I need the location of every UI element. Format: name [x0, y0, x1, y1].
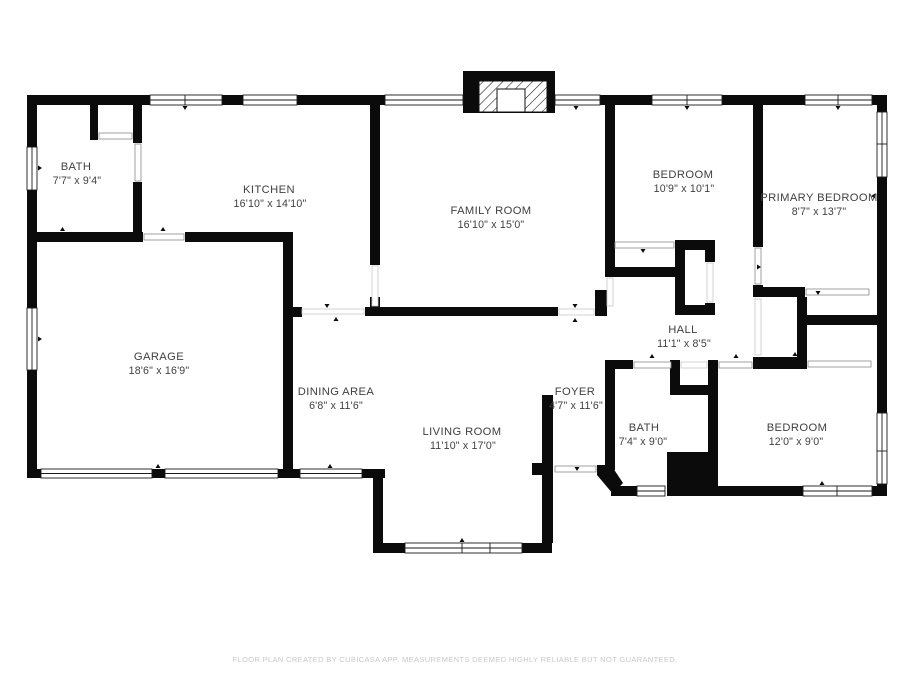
- room-label-foyer: FOYER 4'7" x 11'6": [549, 386, 603, 412]
- window: [637, 486, 665, 496]
- window: [243, 95, 297, 105]
- wall-segment: [611, 486, 637, 496]
- entry-door: [555, 466, 596, 472]
- room-name: GARAGE: [134, 351, 184, 363]
- room-name: FOYER: [555, 386, 596, 398]
- wall-segment: [718, 486, 803, 496]
- window: [27, 147, 37, 190]
- window: [405, 543, 522, 553]
- wall-segment: [807, 315, 877, 325]
- wall-segment: [753, 357, 807, 369]
- door-opening: [135, 144, 141, 181]
- room-label-garage: GARAGE 18'6" x 16'9": [129, 351, 190, 377]
- garage-door: [165, 469, 278, 478]
- wall-segment: [670, 385, 718, 395]
- room-name: KITCHEN: [243, 184, 295, 196]
- room-dimensions: 10'9" x 10'1": [654, 183, 715, 195]
- wall-segment: [532, 463, 542, 475]
- cased-opening: [607, 278, 613, 306]
- room-dimensions: 4'7" x 11'6": [549, 400, 603, 412]
- cased-opening: [372, 266, 378, 306]
- wall-segment: [133, 105, 142, 143]
- room-label-family-room: FAMILY ROOM 16'10" x 15'0": [450, 205, 531, 231]
- window: [555, 95, 600, 105]
- room-label-primary-bedroom: PRIMARY BEDROOM 8'7" x 13'7": [760, 192, 877, 218]
- wall-segment: [605, 240, 614, 250]
- room-dimensions: 8'7" x 13'7": [792, 206, 847, 218]
- room-name: FAMILY ROOM: [450, 205, 531, 217]
- wall-segment: [293, 307, 302, 317]
- room-label-kitchen: KITCHEN 16'10" x 14'10": [234, 184, 307, 210]
- room-label-bath-1: BATH 7'7" x 9'4": [53, 161, 102, 187]
- door-opening: [99, 133, 132, 139]
- room-name: LIVING ROOM: [423, 426, 502, 438]
- wall-segment: [27, 95, 37, 147]
- wall-segment: [297, 95, 385, 105]
- wall-segment: [877, 177, 887, 413]
- wall-segment: [27, 469, 41, 478]
- window: [877, 413, 887, 484]
- wall-segment: [90, 105, 98, 140]
- room-name: HALL: [668, 324, 698, 336]
- wall-segment: [283, 232, 293, 478]
- fireplace: [463, 71, 555, 113]
- floor-plan-drawing: BATH 7'7" x 9'4" KITCHEN 16'10" x 14'10"…: [0, 0, 911, 683]
- door-opening: [615, 242, 674, 248]
- wall-segment: [675, 240, 685, 315]
- wall-segment: [872, 95, 887, 105]
- wall-segment: [152, 469, 165, 478]
- closet-door: [808, 361, 871, 367]
- room-label-hall: HALL 11'1" x 8'5": [657, 324, 711, 350]
- closet-opening: [681, 362, 707, 368]
- room-name: DINING AREA: [298, 386, 375, 398]
- floor-plan-page: BATH 7'7" x 9'4" KITCHEN 16'10" x 14'10"…: [0, 0, 911, 683]
- wall-segment: [27, 232, 143, 242]
- room-label-dining-area: DINING AREA 6'8" x 11'6": [298, 386, 375, 412]
- wall-segment: [797, 297, 807, 367]
- room-dimensions: 12'0" x 9'0": [769, 436, 824, 448]
- closet-opening: [707, 263, 713, 302]
- window: [652, 95, 722, 105]
- door-opening: [719, 362, 752, 368]
- window: [300, 469, 362, 478]
- wall-segment: [600, 95, 652, 105]
- wall-segment: [373, 543, 405, 553]
- room-dimensions: 7'7" x 9'4": [53, 175, 102, 187]
- wall-segment: [27, 370, 37, 478]
- wall-segment: [877, 484, 887, 496]
- door-opening: [144, 234, 184, 240]
- cased-opening: [559, 309, 594, 315]
- utility-chase: [667, 452, 718, 496]
- closet-door: [806, 289, 869, 295]
- wall-segment: [370, 105, 380, 265]
- wall-segment: [595, 290, 607, 316]
- wall-segment: [362, 469, 385, 478]
- wall-segment: [542, 395, 553, 543]
- wall-segment: [365, 307, 558, 316]
- wall-segment: [722, 95, 805, 105]
- wall-segment: [222, 95, 243, 105]
- wall-segment: [708, 360, 718, 452]
- room-dimensions: 11'1" x 8'5": [657, 338, 711, 350]
- wall-segment: [705, 240, 715, 262]
- garage-door: [41, 469, 152, 478]
- wall-segment: [675, 305, 715, 315]
- room-name: BATH: [61, 161, 92, 173]
- room-name: BATH: [629, 422, 660, 434]
- window: [27, 308, 37, 370]
- wall-segment: [185, 232, 293, 242]
- wall-segment: [605, 360, 615, 470]
- wall-segment: [373, 478, 383, 553]
- wall-segment: [27, 95, 150, 105]
- room-dimensions: 16'10" x 15'0": [458, 219, 525, 231]
- door-opening: [634, 362, 671, 368]
- wall-segment: [27, 190, 37, 308]
- room-label-bedroom-1: BEDROOM 10'9" x 10'1": [653, 169, 715, 195]
- cased-opening: [302, 309, 364, 314]
- room-name: PRIMARY BEDROOM: [760, 192, 877, 204]
- wall-segment: [522, 543, 552, 553]
- window: [805, 95, 872, 105]
- window: [803, 486, 872, 496]
- window: [877, 112, 887, 177]
- fireplace-firebox: [497, 89, 525, 112]
- room-label-bedroom-2: BEDROOM 12'0" x 9'0": [767, 422, 828, 448]
- room-dimensions: 6'8" x 11'6": [309, 400, 363, 412]
- wall-segment: [753, 287, 805, 297]
- room-dimensions: 7'4" x 9'0": [619, 436, 668, 448]
- room-dimensions: 16'10" x 14'10": [234, 198, 307, 210]
- wall-segment: [605, 105, 615, 277]
- room-name: BEDROOM: [767, 422, 828, 434]
- window: [150, 95, 222, 105]
- wall-segment: [753, 105, 763, 247]
- wall-segment: [611, 267, 685, 277]
- room-name: BEDROOM: [653, 169, 714, 181]
- room-label-living-room: LIVING ROOM 11'10" x 17'0": [423, 426, 502, 452]
- room-dimensions: 11'10" x 17'0": [430, 440, 496, 452]
- window: [385, 95, 463, 105]
- closet-opening: [755, 299, 761, 355]
- footer-disclaimer: FLOOR PLAN CREATED BY CUBICASA APP. MEAS…: [233, 655, 678, 664]
- room-label-bath-2: BATH 7'4" x 9'0": [619, 422, 668, 448]
- room-dimensions: 18'6" x 16'9": [129, 365, 190, 377]
